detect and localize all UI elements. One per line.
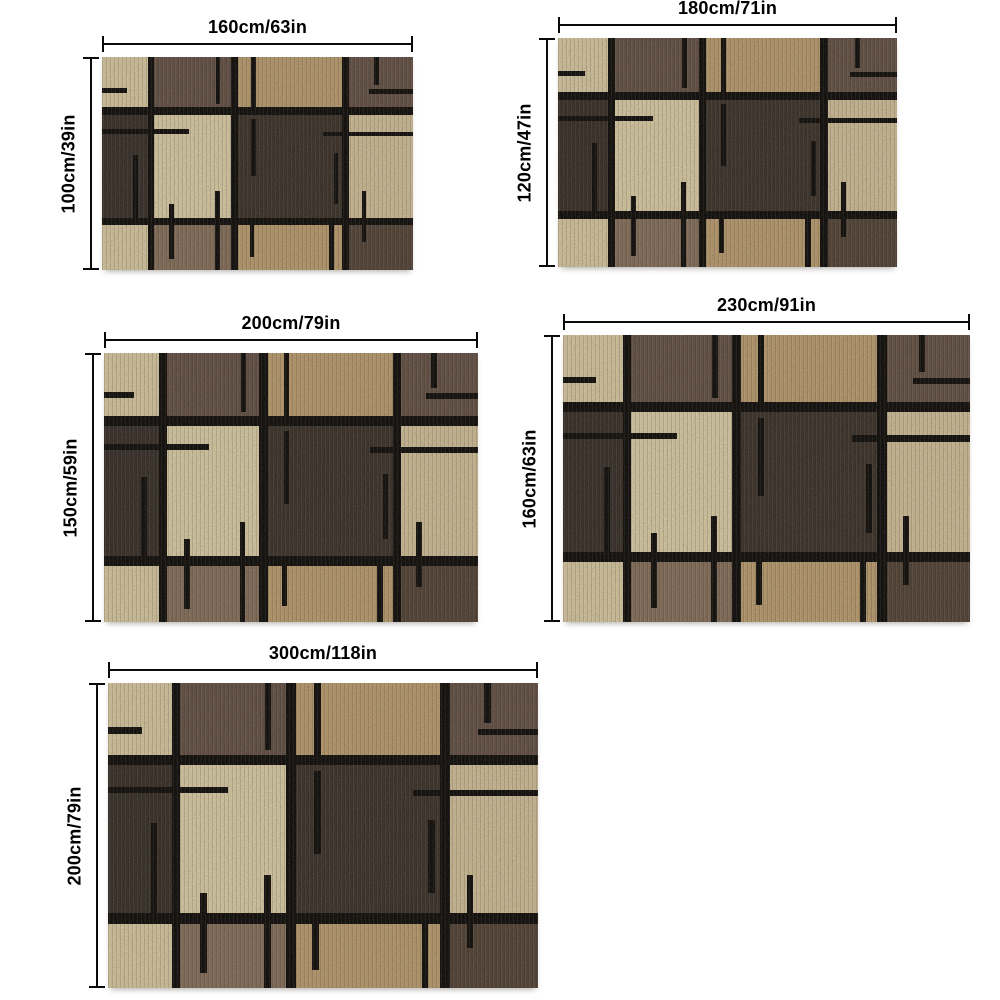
rug-accent-line-vertical bbox=[416, 522, 422, 587]
rug-accent-line-horizontal bbox=[563, 433, 677, 439]
rug-pattern-cell bbox=[450, 683, 538, 755]
size-variant-180x120: 180cm/71in 120cm/47in bbox=[512, 0, 897, 267]
rug-accent-line-vertical bbox=[133, 155, 138, 219]
rug-accent-line-vertical bbox=[251, 119, 256, 177]
rug-accent-line-vertical bbox=[422, 924, 428, 988]
rug-accent-line-vertical bbox=[903, 516, 909, 585]
rug-accent-line-horizontal bbox=[323, 132, 413, 137]
rug-accent-line-horizontal bbox=[104, 444, 209, 450]
height-dimension-label: 150cm/59in bbox=[61, 438, 82, 537]
rug-accent-line-vertical bbox=[484, 683, 490, 723]
rug-pattern-cell bbox=[401, 426, 478, 556]
rug-accent-line-horizontal bbox=[426, 393, 478, 399]
width-dimension: 160cm/63in bbox=[102, 15, 413, 57]
rug-pattern-cell bbox=[450, 924, 538, 988]
rug-accent-line-vertical bbox=[314, 683, 320, 756]
rug-accent-line-horizontal bbox=[850, 72, 897, 77]
rug-accent-line-vertical bbox=[604, 467, 610, 553]
rug-photo-180x120 bbox=[558, 38, 897, 267]
rug-accent-line-horizontal bbox=[369, 89, 413, 94]
width-dimension-arrow bbox=[104, 339, 478, 341]
rug-accent-line-vertical bbox=[719, 219, 724, 253]
rug-accent-line-vertical bbox=[758, 418, 764, 495]
rug-accent-line-vertical bbox=[240, 522, 246, 622]
rug-accent-line-vertical bbox=[428, 820, 434, 893]
width-dimension-label: 160cm/63in bbox=[102, 17, 413, 38]
rug-accent-line-vertical bbox=[651, 533, 657, 608]
rug-accent-line-vertical bbox=[467, 875, 473, 948]
rug-accent-line-vertical bbox=[362, 191, 367, 242]
rug-accent-line-horizontal bbox=[913, 378, 970, 384]
height-dimension-arrow bbox=[92, 353, 94, 622]
rug-accent-line-horizontal bbox=[799, 118, 897, 123]
height-dimension-label: 200cm/79in bbox=[65, 786, 86, 885]
height-dimension-arrow bbox=[90, 57, 92, 270]
rug-pattern-cell bbox=[828, 100, 897, 211]
rug-photo-200x150 bbox=[104, 353, 478, 622]
rug-accent-line-vertical bbox=[329, 225, 334, 270]
height-dimension: 120cm/47in bbox=[512, 38, 558, 267]
rug-accent-line-horizontal bbox=[108, 787, 228, 794]
rug-accent-line-horizontal bbox=[558, 71, 585, 76]
rug-accent-line-vertical bbox=[241, 353, 247, 412]
rug-accent-line-vertical bbox=[721, 38, 726, 93]
rug-accent-line-vertical bbox=[216, 57, 221, 104]
rug-accent-line-horizontal bbox=[370, 447, 478, 453]
rug-pattern-cell bbox=[401, 353, 478, 416]
width-dimension-arrow bbox=[563, 321, 970, 323]
height-dimension-arrow bbox=[96, 683, 98, 988]
width-dimension-arrow bbox=[108, 669, 538, 671]
rug-pattern-cell bbox=[828, 38, 897, 92]
rug-accent-line-vertical bbox=[758, 335, 764, 404]
width-dimension-label: 180cm/71in bbox=[558, 0, 897, 19]
rug-accent-line-vertical bbox=[169, 204, 174, 259]
rug-accent-line-vertical bbox=[151, 823, 157, 915]
rug-accent-line-vertical bbox=[592, 143, 597, 212]
height-dimension: 160cm/63in bbox=[517, 335, 563, 622]
rug-pattern-cell bbox=[450, 765, 538, 913]
rug-accent-line-vertical bbox=[860, 562, 866, 622]
rug-accent-line-vertical bbox=[264, 875, 270, 988]
width-dimension-label: 300cm/118in bbox=[108, 643, 538, 664]
rug-accent-line-horizontal bbox=[102, 129, 189, 134]
rug-accent-line-horizontal bbox=[478, 729, 538, 736]
height-dimension: 200cm/79in bbox=[62, 683, 108, 988]
rug-pattern-cell bbox=[349, 115, 413, 218]
rug-accent-line-horizontal bbox=[563, 377, 596, 383]
rug-pattern-cell bbox=[887, 335, 970, 402]
rug-accent-line-vertical bbox=[284, 431, 290, 504]
rug-accent-line-vertical bbox=[334, 153, 339, 204]
rug-accent-line-vertical bbox=[811, 141, 816, 196]
rug-accent-line-horizontal bbox=[558, 116, 653, 121]
size-variant-300x200: 300cm/118in 200cm/79in bbox=[62, 641, 538, 988]
rug-pattern-cell bbox=[558, 38, 608, 92]
rug-accent-line-vertical bbox=[265, 683, 271, 750]
rug-accent-line-vertical bbox=[312, 924, 318, 970]
rug-accent-line-vertical bbox=[841, 182, 846, 237]
rug-accent-line-horizontal bbox=[108, 727, 142, 734]
rug-accent-line-vertical bbox=[681, 182, 686, 267]
rug-accent-line-vertical bbox=[250, 225, 255, 257]
rug-photo-230x160 bbox=[563, 335, 970, 622]
rug-accent-line-vertical bbox=[712, 335, 718, 398]
rug-accent-line-vertical bbox=[284, 353, 290, 418]
width-dimension-arrow bbox=[102, 43, 413, 45]
rug-accent-line-horizontal bbox=[852, 435, 970, 441]
rug-accent-line-vertical bbox=[374, 57, 379, 85]
height-dimension-label: 120cm/47in bbox=[515, 103, 536, 202]
width-dimension-label: 200cm/79in bbox=[104, 313, 478, 334]
width-dimension: 300cm/118in bbox=[108, 641, 538, 683]
rug-accent-line-vertical bbox=[383, 474, 389, 539]
rug-accent-line-vertical bbox=[215, 191, 220, 270]
rug-accent-line-vertical bbox=[377, 566, 383, 622]
rug-pattern-cell bbox=[108, 924, 172, 988]
rug-pattern-cell bbox=[349, 57, 413, 107]
rug-pattern-cell bbox=[563, 562, 623, 622]
rug-accent-line-vertical bbox=[919, 335, 925, 372]
rug-accent-line-vertical bbox=[251, 57, 256, 108]
rug-pattern-cell bbox=[102, 57, 148, 107]
size-variant-200x150: 200cm/79in 150cm/59in bbox=[58, 311, 478, 622]
width-dimension: 180cm/71in bbox=[558, 0, 897, 38]
height-dimension-label: 160cm/63in bbox=[520, 429, 541, 528]
rug-accent-line-vertical bbox=[866, 464, 872, 533]
size-variant-160x100: 160cm/63in 100cm/39in bbox=[56, 15, 413, 270]
rug-pattern-cell bbox=[828, 219, 897, 267]
rug-pattern-cell bbox=[401, 566, 478, 622]
rug-pattern-cell bbox=[108, 683, 172, 755]
rug-accent-line-vertical bbox=[184, 539, 190, 609]
rug-accent-line-horizontal bbox=[413, 790, 538, 797]
height-dimension-label: 100cm/39in bbox=[59, 114, 80, 213]
rug-pattern-cell bbox=[104, 566, 159, 622]
rug-accent-line-vertical bbox=[314, 771, 320, 853]
rug-accent-line-horizontal bbox=[104, 392, 134, 398]
rug-accent-line-vertical bbox=[141, 477, 147, 558]
rug-pattern-cell bbox=[104, 353, 159, 416]
rug-photo-160x100 bbox=[102, 57, 413, 270]
rug-pattern-cell bbox=[887, 412, 970, 551]
rug-accent-line-vertical bbox=[721, 104, 726, 166]
height-dimension-arrow bbox=[551, 335, 553, 622]
rug-accent-line-vertical bbox=[711, 516, 717, 622]
rug-accent-line-vertical bbox=[756, 562, 762, 605]
rug-size-chart-image: { "product": { "description": "Area rug … bbox=[0, 0, 1000, 1000]
rug-pattern-cell bbox=[887, 562, 970, 622]
rug-pattern-cell bbox=[558, 219, 608, 267]
height-dimension: 150cm/59in bbox=[58, 353, 104, 622]
height-dimension-arrow bbox=[546, 38, 548, 267]
rug-pattern-cell bbox=[349, 225, 413, 270]
rug-accent-line-horizontal bbox=[102, 88, 127, 93]
rug-pattern-cell bbox=[102, 225, 148, 270]
rug-accent-line-vertical bbox=[631, 196, 636, 256]
rug-pattern-cell bbox=[563, 335, 623, 402]
rug-accent-line-vertical bbox=[431, 353, 437, 388]
size-variant-230x160: 230cm/91in 160cm/63in bbox=[517, 293, 970, 622]
rug-accent-line-vertical bbox=[855, 38, 860, 68]
rug-photo-300x200 bbox=[108, 683, 538, 988]
rug-accent-line-vertical bbox=[805, 219, 810, 267]
width-dimension: 230cm/91in bbox=[563, 293, 970, 335]
height-dimension: 100cm/39in bbox=[56, 57, 102, 270]
width-dimension: 200cm/79in bbox=[104, 311, 478, 353]
width-dimension-label: 230cm/91in bbox=[563, 295, 970, 316]
rug-accent-line-vertical bbox=[282, 566, 288, 606]
rug-accent-line-vertical bbox=[682, 38, 687, 88]
rug-accent-line-vertical bbox=[200, 893, 206, 972]
width-dimension-arrow bbox=[558, 24, 897, 26]
